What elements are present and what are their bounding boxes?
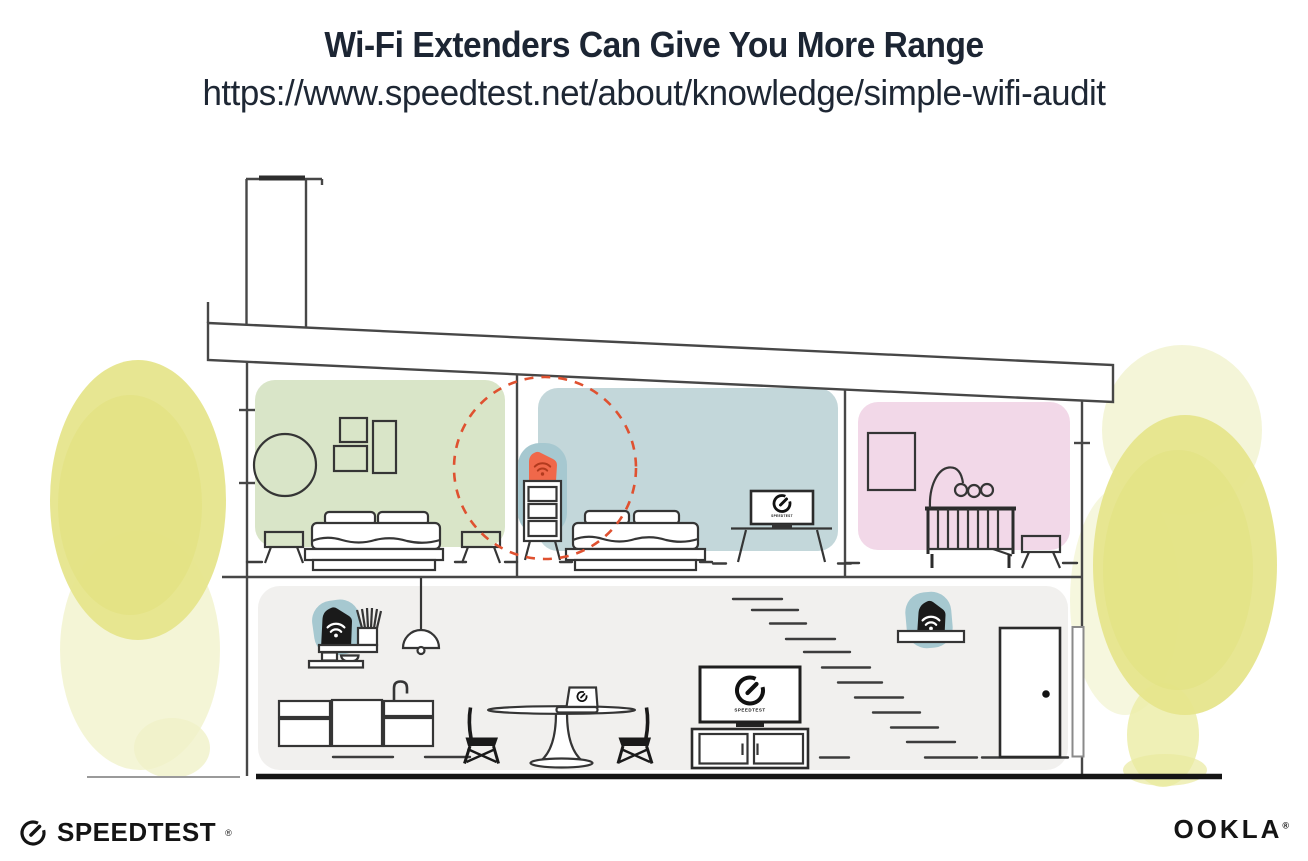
chimney xyxy=(246,176,322,329)
speedtest-gauge-icon xyxy=(18,818,48,848)
infographic: Wi-Fi Extenders Can Give You More Range … xyxy=(0,0,1308,861)
foliage-right xyxy=(1070,345,1277,787)
door-frame-trim xyxy=(1073,627,1084,757)
front-door xyxy=(1000,628,1060,757)
tv-console xyxy=(692,729,808,768)
tv-screen-label: SPEEDTEST xyxy=(771,514,793,518)
speedtest-wordmark: SPEEDTEST xyxy=(57,817,216,848)
registered-mark: ® xyxy=(225,828,232,838)
registered-mark: ® xyxy=(1282,820,1292,830)
tv-screen-label: SPEEDTEST xyxy=(734,708,765,713)
foliage-left xyxy=(50,360,226,778)
house-illustration: SPEEDTEST xyxy=(0,0,1308,861)
speedtest-logo: SPEEDTEST® xyxy=(18,817,232,848)
ookla-logo: OOKLA® xyxy=(1173,814,1292,845)
room-pink-nursery xyxy=(858,402,1070,550)
living-room-tv: SPEEDTEST xyxy=(700,667,800,727)
shelf xyxy=(319,645,377,652)
shelf xyxy=(898,631,964,642)
bed xyxy=(305,512,443,570)
chimney-cap xyxy=(259,176,305,181)
door-knob xyxy=(1042,690,1050,698)
ookla-wordmark: OOKLA xyxy=(1173,814,1282,844)
